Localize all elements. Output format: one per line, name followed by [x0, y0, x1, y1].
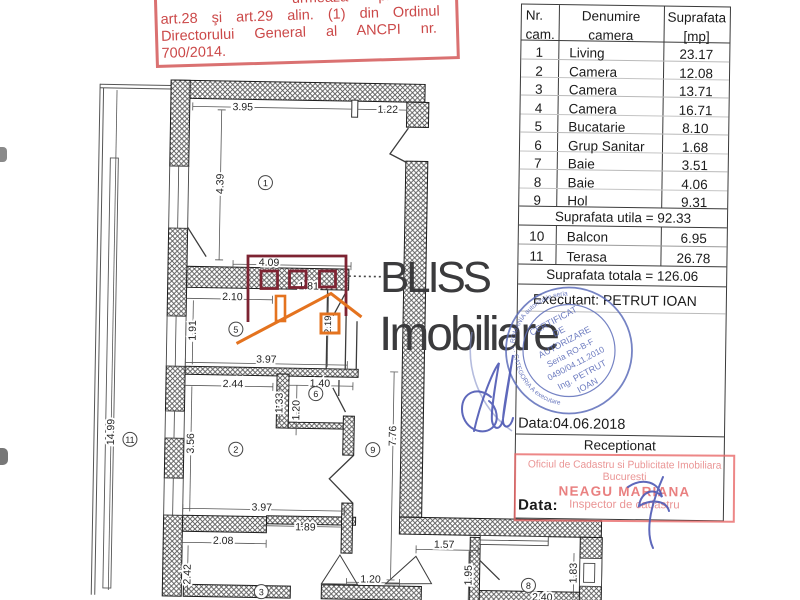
- svg-text:A.N.C.P.I. ROMANIA autorizat: A.N.C.P.I. ROMANIA autorizatie seria: [0, 0, 568, 351]
- svg-text:Bucuresti ad. CATEGORIA A e: Bucuresti ad. CATEGORIA A executare: [0, 0, 561, 407]
